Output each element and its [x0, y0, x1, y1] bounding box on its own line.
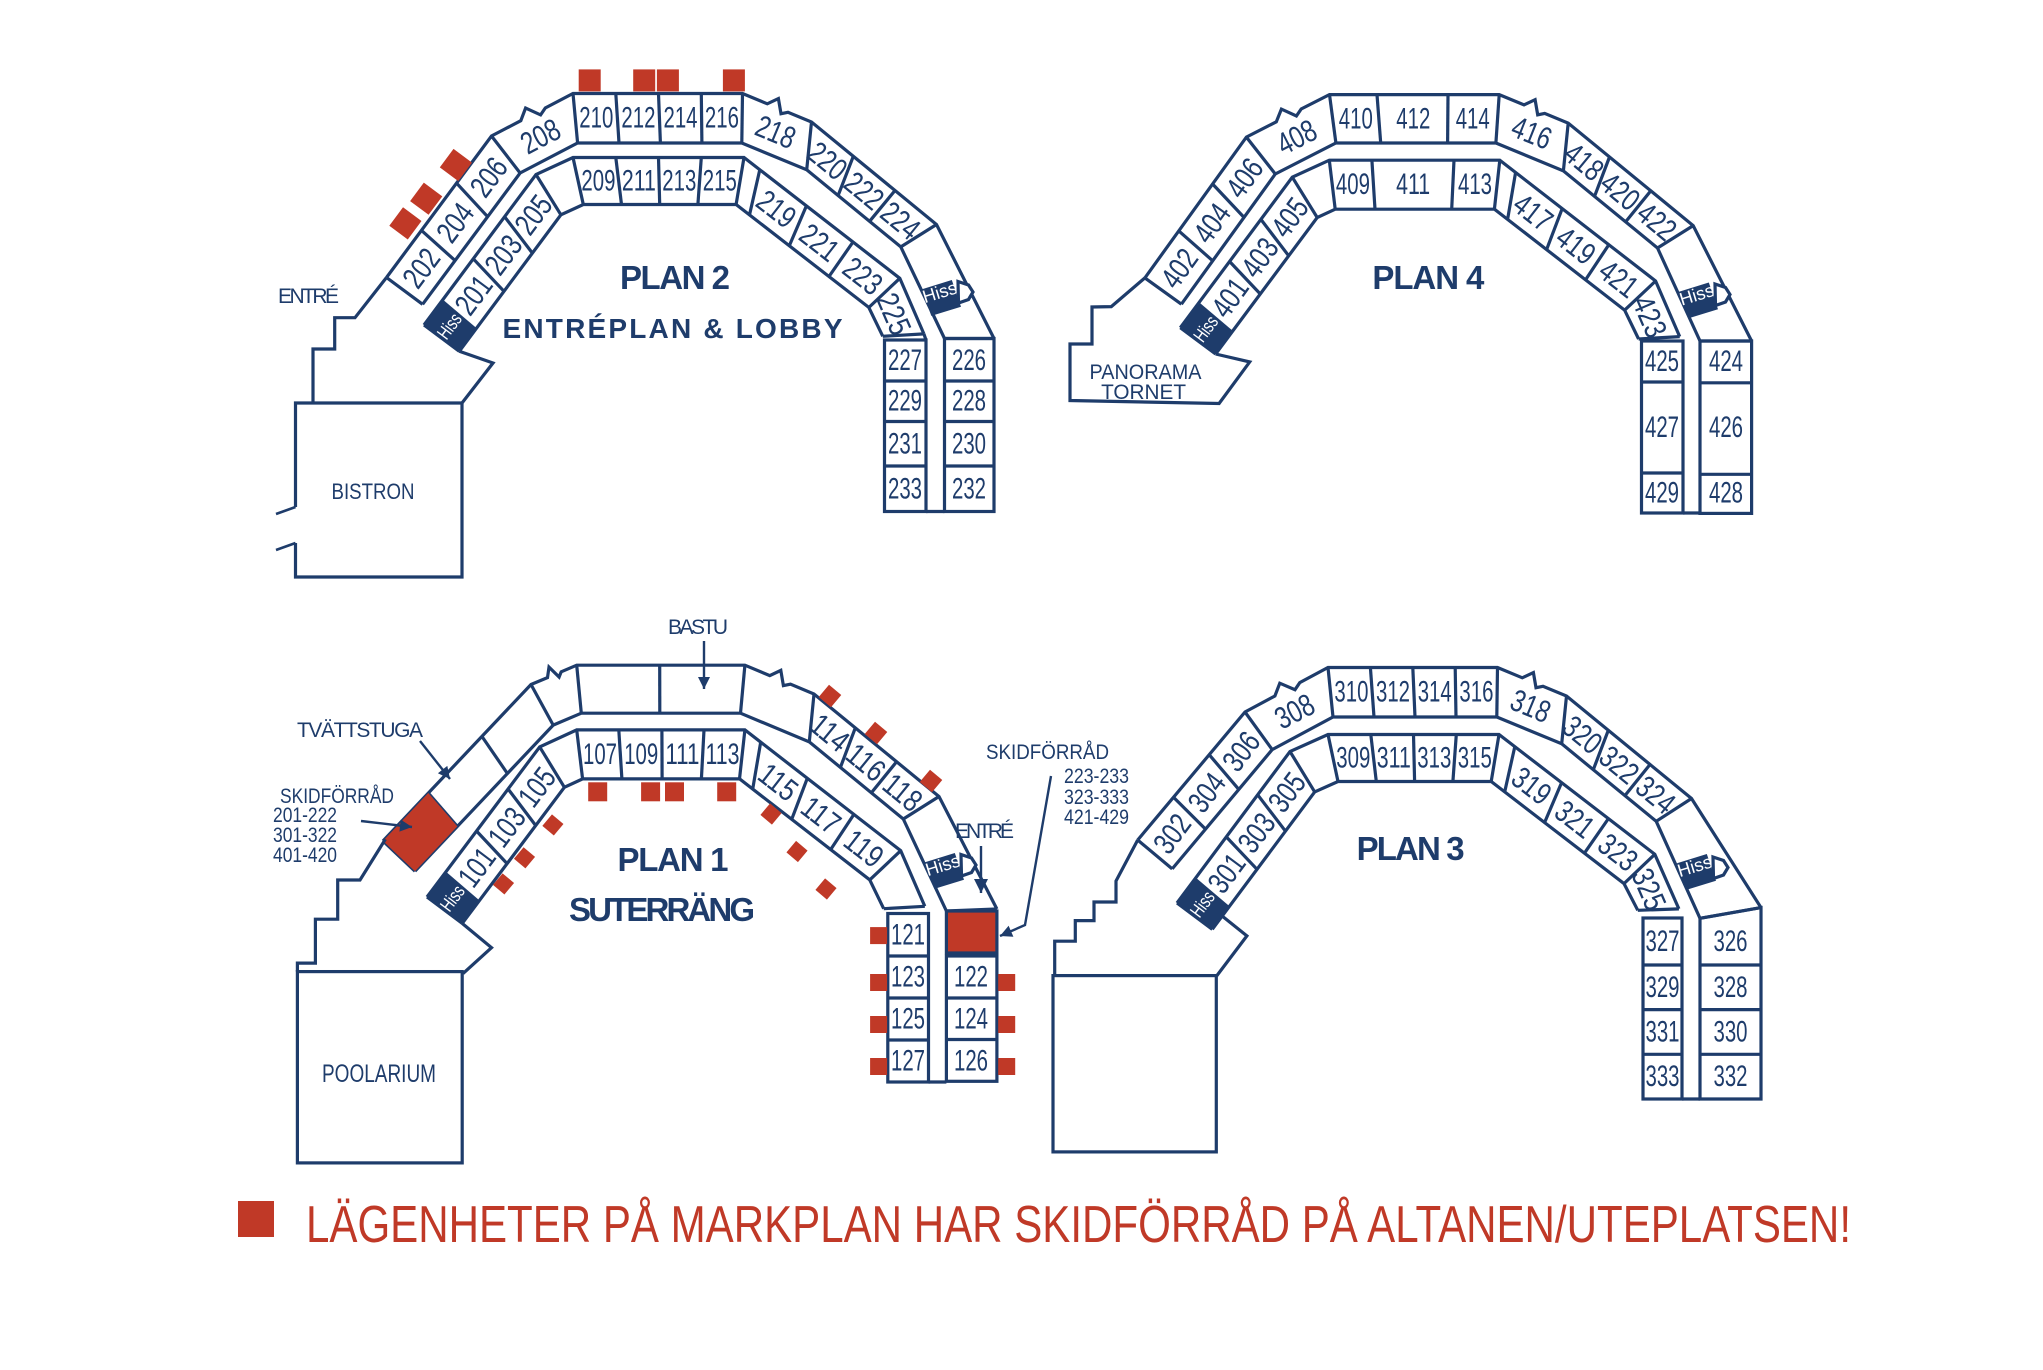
svg-text:229: 229: [888, 385, 922, 418]
svg-text:209: 209: [581, 165, 615, 198]
svg-text:312: 312: [1376, 676, 1410, 709]
svg-text:429: 429: [1645, 477, 1679, 510]
svg-text:329: 329: [1646, 971, 1680, 1004]
svg-text:BISTRON: BISTRON: [332, 479, 415, 504]
svg-text:233: 233: [888, 472, 922, 505]
svg-text:125: 125: [891, 1003, 925, 1036]
svg-text:ENTRÉ: ENTRÉ: [955, 820, 1014, 843]
svg-text:PLAN 4: PLAN 4: [1372, 259, 1485, 296]
svg-text:413: 413: [1458, 168, 1492, 201]
svg-text:428: 428: [1709, 477, 1743, 510]
svg-text:ENTRÉ: ENTRÉ: [278, 285, 339, 308]
svg-text:BASTU: BASTU: [668, 616, 728, 639]
svg-text:310: 310: [1334, 676, 1368, 709]
svg-text:231: 231: [888, 427, 922, 460]
svg-text:228: 228: [952, 385, 986, 418]
svg-text:213: 213: [662, 165, 696, 198]
svg-text:111: 111: [665, 738, 699, 771]
svg-text:314: 314: [1418, 676, 1452, 709]
svg-text:214: 214: [664, 102, 698, 135]
svg-text:210: 210: [579, 102, 613, 135]
svg-text:309: 309: [1336, 742, 1370, 775]
svg-text:113: 113: [706, 738, 740, 771]
svg-text:215: 215: [703, 165, 737, 198]
svg-text:316: 316: [1459, 676, 1493, 709]
svg-text:333: 333: [1646, 1060, 1680, 1093]
svg-text:412: 412: [1396, 102, 1430, 135]
svg-text:410: 410: [1339, 102, 1373, 135]
svg-text:227: 227: [888, 344, 922, 377]
svg-text:315: 315: [1458, 742, 1492, 775]
svg-text:426: 426: [1709, 411, 1743, 444]
svg-text:PLAN 1: PLAN 1: [618, 841, 729, 878]
svg-text:TORNET: TORNET: [1101, 381, 1186, 404]
svg-text:327: 327: [1646, 925, 1680, 958]
svg-text:126: 126: [954, 1045, 988, 1078]
svg-text:414: 414: [1456, 102, 1490, 135]
svg-text:POOLARIUM: POOLARIUM: [322, 1060, 436, 1088]
svg-text:223-233: 223-233: [1064, 765, 1129, 788]
svg-text:109: 109: [624, 738, 658, 771]
svg-text:226: 226: [952, 344, 986, 377]
svg-text:122: 122: [954, 961, 988, 994]
svg-text:212: 212: [621, 102, 655, 135]
svg-text:313: 313: [1417, 742, 1451, 775]
svg-text:SKIDFÖRRÅD: SKIDFÖRRÅD: [986, 741, 1109, 764]
svg-text:409: 409: [1336, 168, 1370, 201]
svg-text:124: 124: [954, 1003, 988, 1036]
svg-text:PLAN 3: PLAN 3: [1357, 830, 1465, 867]
svg-text:411: 411: [1396, 168, 1430, 201]
svg-text:401-420: 401-420: [273, 844, 337, 867]
svg-text:311: 311: [1377, 742, 1411, 775]
svg-text:332: 332: [1714, 1060, 1748, 1093]
svg-text:232: 232: [952, 472, 986, 505]
svg-text:123: 123: [891, 961, 925, 994]
svg-text:331: 331: [1646, 1016, 1680, 1049]
svg-text:330: 330: [1714, 1016, 1748, 1049]
svg-text:121: 121: [891, 918, 925, 951]
svg-text:211: 211: [622, 165, 656, 198]
svg-text:216: 216: [705, 102, 739, 135]
svg-text:421-429: 421-429: [1064, 806, 1129, 829]
svg-text:425: 425: [1645, 345, 1679, 378]
svg-text:427: 427: [1645, 411, 1679, 444]
svg-text:SUTERRÄNG: SUTERRÄNG: [569, 891, 755, 928]
svg-text:328: 328: [1714, 971, 1748, 1004]
svg-text:PLAN 2: PLAN 2: [620, 259, 730, 296]
svg-text:230: 230: [952, 427, 986, 460]
svg-text:ENTRÉPLAN & LOBBY: ENTRÉPLAN & LOBBY: [503, 313, 843, 344]
svg-text:127: 127: [891, 1045, 925, 1078]
svg-text:326: 326: [1714, 925, 1748, 958]
svg-text:424: 424: [1709, 345, 1743, 378]
svg-text:107: 107: [583, 738, 617, 771]
svg-text:TVÄTTSTUGA: TVÄTTSTUGA: [297, 719, 423, 742]
svg-text:LÄGENHETER PÅ MARKPLAN HAR SKI: LÄGENHETER PÅ MARKPLAN HAR SKIDFÖRRÅD PÅ…: [306, 1196, 1851, 1254]
